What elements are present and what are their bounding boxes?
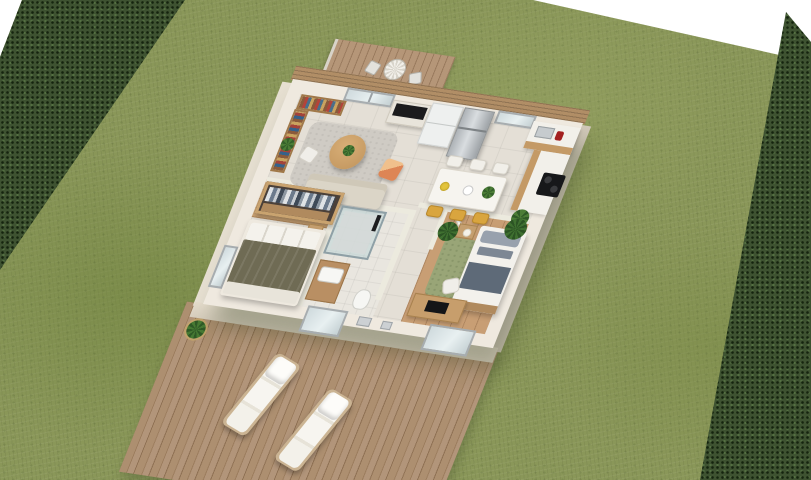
gray-blanket <box>459 262 511 294</box>
tv-screen <box>392 103 428 120</box>
table-lamp <box>461 228 472 237</box>
plant <box>480 186 497 200</box>
plate <box>461 185 475 197</box>
bistro-table <box>380 57 409 81</box>
sink-basin <box>316 266 345 284</box>
sink <box>534 126 555 140</box>
floor-plan-render <box>0 0 811 480</box>
computer-monitor <box>424 300 449 314</box>
sun-lounger <box>220 352 302 438</box>
plant <box>341 144 356 157</box>
sun-lounger <box>273 387 355 473</box>
potted-plant <box>181 317 212 342</box>
shower-tray <box>330 211 380 254</box>
flower-vase <box>438 181 451 191</box>
bistro-chair <box>364 60 382 76</box>
coffee-maker <box>554 131 565 141</box>
